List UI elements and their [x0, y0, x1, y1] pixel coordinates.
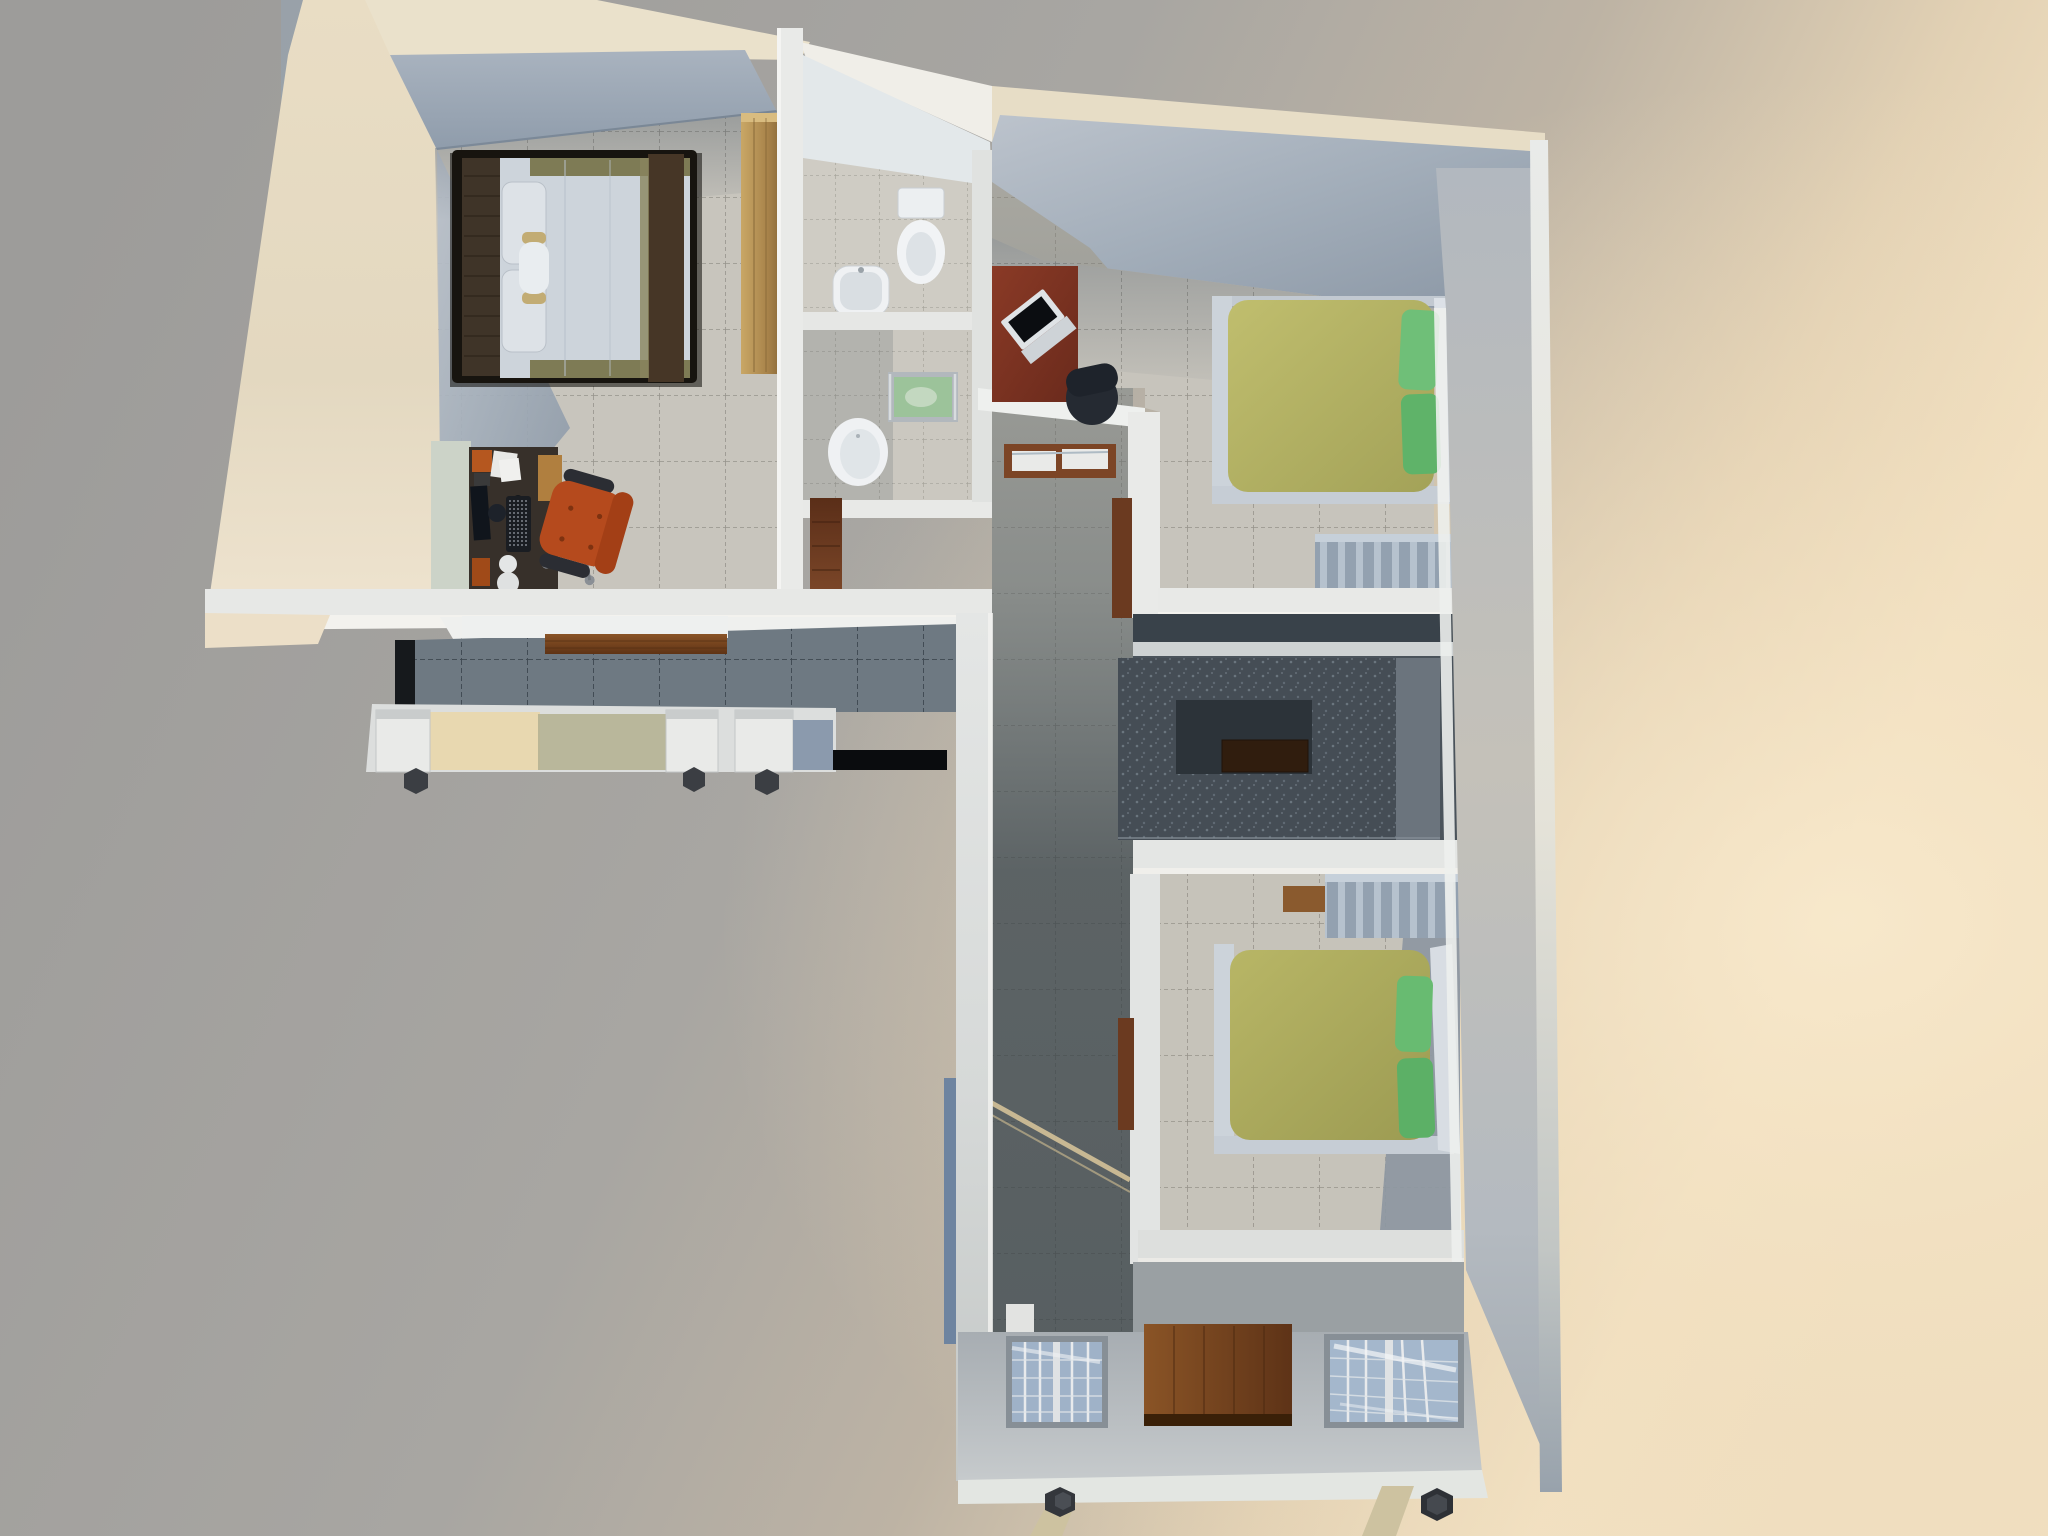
window-box-shade — [376, 710, 430, 719]
dark-wood-door — [810, 498, 842, 592]
green-pillow-top — [1395, 975, 1434, 1052]
green-pillow-bottom — [1397, 1057, 1436, 1138]
bedroom3-open-door — [1118, 1018, 1134, 1130]
sink — [833, 266, 889, 316]
window-box-shade — [735, 710, 793, 719]
kitchen-counters — [1118, 658, 1440, 840]
left-wing-south-wall — [205, 589, 992, 617]
vanity-basin — [905, 387, 937, 407]
window-box-1 — [376, 710, 430, 772]
glass-panel — [793, 720, 833, 770]
bedroom2-open-door — [1112, 498, 1132, 618]
kitchen-north-lip — [1133, 642, 1460, 656]
facade-window-right — [1324, 1334, 1464, 1428]
bedroom-3 — [1118, 840, 1465, 1266]
desk-lamp-shade — [499, 555, 517, 573]
toilet-tank — [898, 188, 944, 218]
monitor-base — [488, 504, 506, 522]
divider-wall-highlight — [777, 28, 781, 592]
books-stack-2 — [472, 558, 490, 586]
window-box-3 — [735, 710, 793, 772]
green-pillow-bottom — [1401, 393, 1442, 474]
cooktop — [1222, 740, 1308, 772]
green-pillow-top — [1398, 309, 1440, 391]
master-bedroom — [390, 50, 779, 594]
master-desk-area — [431, 441, 562, 594]
floorplan-render — [0, 0, 2048, 1536]
wood-floor-strip — [545, 634, 727, 654]
master-bed-headboard — [462, 158, 502, 376]
sink-bowl — [840, 272, 882, 310]
south-wall-lit-cream — [430, 712, 540, 770]
south-wall-olive-panel — [538, 714, 668, 770]
wood-strip — [545, 634, 727, 654]
toilet — [897, 188, 945, 284]
dark-folder — [474, 473, 490, 486]
door-bottom-band — [1144, 1414, 1292, 1426]
bedroom3-south-wall — [1138, 1230, 1464, 1262]
wood-shelf — [1283, 886, 1325, 912]
wardrobe-top-lip — [1325, 874, 1465, 882]
toilet-lid — [906, 232, 936, 276]
service-floor — [1133, 1262, 1464, 1334]
render-viewport — [0, 0, 2048, 1536]
south-wall-cream-corner — [205, 613, 330, 648]
window-box-shade — [666, 710, 718, 719]
kitchen — [1118, 614, 1460, 874]
dark-doorway — [395, 640, 415, 712]
green-vanity — [888, 372, 958, 422]
bathroom-divider-wall — [803, 312, 993, 330]
west-wall-inner-lip — [988, 613, 993, 1333]
counter-right-column — [1396, 658, 1440, 840]
dining-room — [366, 616, 958, 795]
window-box-2 — [666, 710, 718, 772]
west-window-glass-sliver — [944, 1078, 956, 1344]
facade — [958, 1324, 1488, 1504]
facade-door — [1144, 1324, 1292, 1426]
master-wardrobe — [741, 113, 779, 374]
master-wardrobe-top — [741, 113, 779, 122]
facade-window-left — [1006, 1336, 1108, 1428]
faucet — [858, 267, 864, 273]
bathroom-east-wall — [972, 150, 993, 502]
toilet-lid — [840, 429, 880, 479]
pale-cabinet — [431, 441, 471, 589]
bedroom2-bed — [1212, 296, 1458, 504]
kitchen-wall-shadow — [1133, 614, 1460, 642]
master-bed — [450, 150, 702, 387]
bedroom3-bed — [1214, 944, 1460, 1154]
master-wardrobe-body — [741, 113, 779, 374]
master-bed-foot-blanket — [648, 154, 684, 382]
bedroom2-west-wall — [1128, 412, 1160, 618]
round-toilet — [828, 418, 888, 486]
books-stack — [472, 450, 492, 472]
wall-console — [1004, 444, 1116, 478]
bolster-pillow — [519, 242, 549, 294]
bedroom3-west-wall — [1130, 874, 1160, 1264]
entry-door — [1144, 1324, 1292, 1426]
dark-opening — [833, 750, 947, 770]
blanket-trim — [640, 158, 649, 378]
papers-2 — [499, 458, 522, 482]
sliding-wardrobe — [1325, 874, 1465, 938]
toilet-button — [856, 434, 860, 438]
